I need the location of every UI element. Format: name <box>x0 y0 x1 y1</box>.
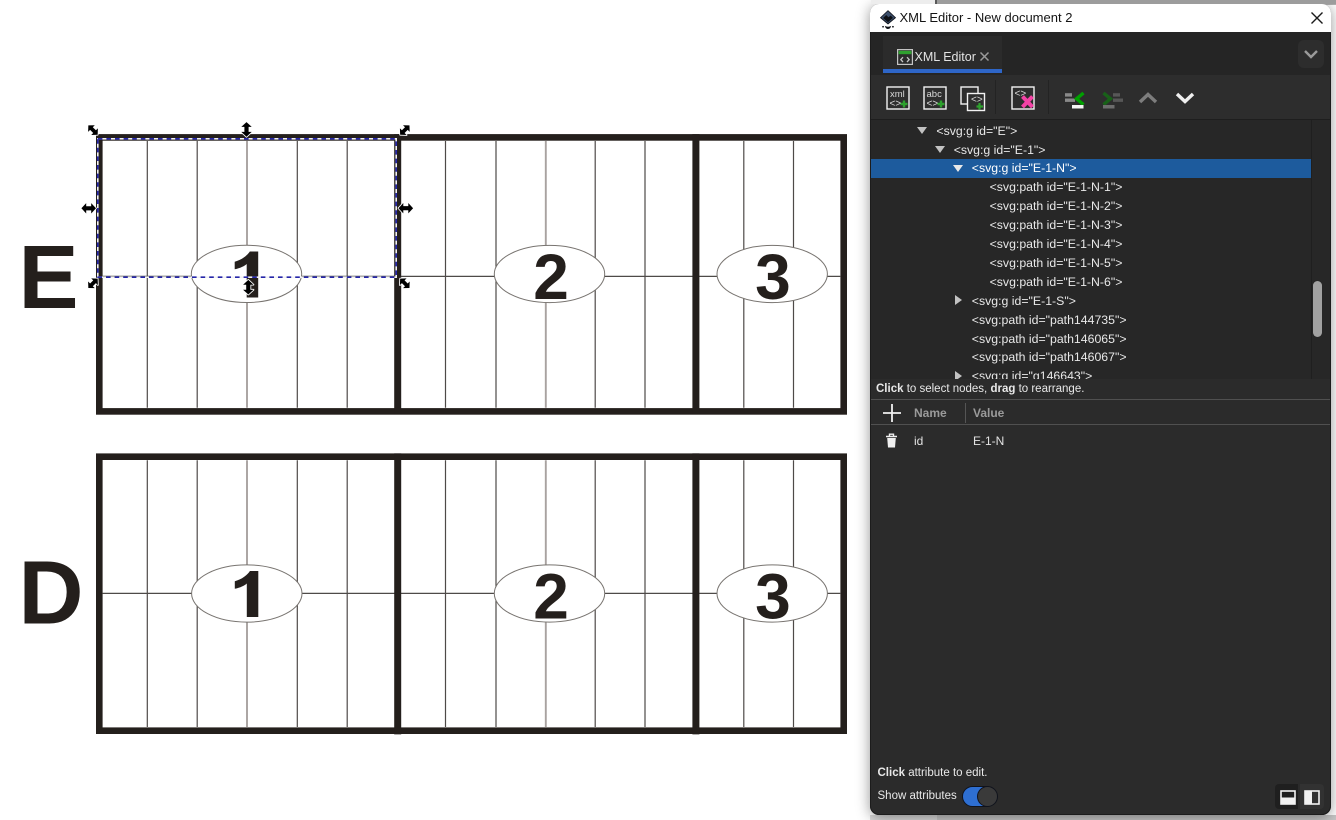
svg-text:E: E <box>19 228 79 328</box>
svg-text:D: D <box>19 544 84 644</box>
svg-text:<>: <> <box>927 98 939 109</box>
svg-text:2: 2 <box>533 241 569 313</box>
svg-text:3: 3 <box>755 241 791 313</box>
svg-text:3: 3 <box>755 561 791 633</box>
svg-text:2: 2 <box>533 561 569 633</box>
svg-text:<>: <> <box>971 94 983 105</box>
svg-text:<>: <> <box>889 98 901 109</box>
